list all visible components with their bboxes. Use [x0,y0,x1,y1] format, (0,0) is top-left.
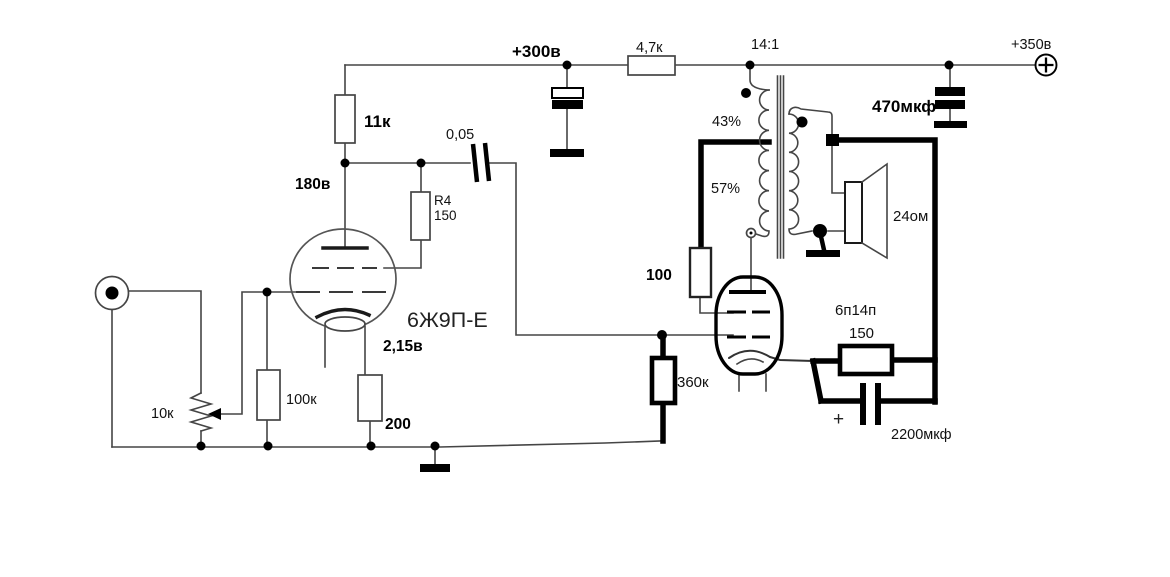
node-dot [263,288,272,297]
jack-to-pot [128,291,201,393]
label-cathode-voltage: 2,15в [383,338,423,355]
anode-resistor-11k [335,95,355,143]
filter-cap-300v [552,88,583,109]
label-output-tube: 6п14п [835,302,876,319]
speaker-body [845,182,862,243]
label-bypass-cap: 2200мкф [891,427,952,443]
bypass-cap-plate-left [860,383,866,425]
label-grid-leak-out: 360к [677,374,709,391]
label-anode-voltage: 180в [295,176,330,193]
node-dot [563,61,572,70]
filter-cap2-plate-top [935,87,965,96]
primary-winding [756,90,769,236]
ground-bar-filter1 [550,149,584,157]
filter-cap1-plate-top [552,88,583,98]
node-dot [264,442,273,451]
grid-leak-360k [652,358,675,403]
transformer-core [778,76,784,258]
coupling-cap-plates [473,143,489,182]
node-dot [341,159,350,168]
label-b300: +300в [512,42,561,61]
secondary-phase-dot [797,117,808,128]
tube-6zh9p [290,229,396,331]
labels: +300в 4,7к 14:1 +350в 11к 0,05 470мкф 18… [151,37,1052,443]
label-pot: 10к [151,406,174,422]
grid-leak-100k [257,370,280,420]
node-dot [746,61,755,70]
tube1-cathode-arc [317,309,369,317]
filter-cap2-plate-bottom [935,100,965,109]
dropper-resistor-4k7 [628,56,675,75]
label-dropper: 4,7к [636,40,663,56]
feedback-junction [826,134,839,146]
label-cathode-resistor-in: 200 [385,416,411,433]
input-jack [96,277,129,310]
tube-6p14p [716,277,782,374]
bypass-cap-plate-right [875,383,881,425]
node-dot [945,61,954,70]
filter-cap-470uf [935,87,965,109]
label-coupling-cap: 0,05 [446,127,474,143]
filter-cap1-plate-bottom [552,100,583,109]
screen-stopper-100 [690,248,711,297]
tube2-heater-legs [739,374,766,391]
label-input-tube: 6Ж9П-Е [407,308,488,332]
speaker [845,164,887,258]
primary-bottom-terminal-dot [750,232,753,235]
ground-bar-bus [420,464,450,472]
volume-pot-10k [191,393,221,431]
secondary-winding [789,114,812,234]
label-screen-stopper: 100 [646,267,672,284]
label-screen-resistor-name: R4 [434,193,452,208]
tube2-cathode-inner-arc [737,359,763,364]
cathode-resistor-150 [840,346,892,374]
label-ratio: 14:1 [751,37,779,53]
screen-resistor-r4 [411,192,430,240]
node-dot [197,442,206,451]
tube2-cathode-arc [729,351,770,358]
label-filter-cap: 470мкф [872,97,936,116]
primary-entry [750,65,769,90]
node-dot [431,442,440,451]
schematic-page: +300в 4,7к 14:1 +350в 11к 0,05 470мкф 18… [0,0,1170,577]
tube1-cathode-legs [325,326,365,375]
node-dot [417,159,426,168]
jack-pin [106,287,119,300]
node-dot [367,442,376,451]
plus350-terminal [1036,55,1057,76]
ground-bar-filter2 [934,121,967,128]
pot-zigzag [191,393,211,431]
label-tap-lower: 57% [711,181,740,197]
coupling-cap-005 [473,143,489,182]
label-anode-resistor: 11к [364,112,391,131]
tube1-envelope [290,229,396,329]
cathode-resistor-200 [358,375,382,421]
label-grid-leak-in: 100к [286,392,317,408]
output-transformer [741,76,839,258]
primary-phase-dot [741,88,751,98]
pot-wiper-arrow [208,408,221,420]
node-dot [657,330,667,340]
wires [112,65,1035,464]
speaker-horn [862,164,887,258]
secondary-bottom-node [813,224,827,238]
ground-bar-secondary [806,250,840,257]
ground-bus [112,441,660,447]
label-screen-resistor-value: 150 [434,208,457,223]
label-bypass-plus: + [833,409,844,430]
tube1-cathode-sleeve [325,317,365,331]
label-tap-upper: 43% [712,114,741,130]
cathode-bypass-2200uf [860,383,881,425]
label-b350: +350в [1011,37,1052,53]
label-speaker: 24ом [893,208,928,225]
label-cathode-resistor-out: 150 [849,325,874,342]
tube-amp-schematic: +300в 4,7к 14:1 +350в 11к 0,05 470мкф 18… [0,0,1170,577]
